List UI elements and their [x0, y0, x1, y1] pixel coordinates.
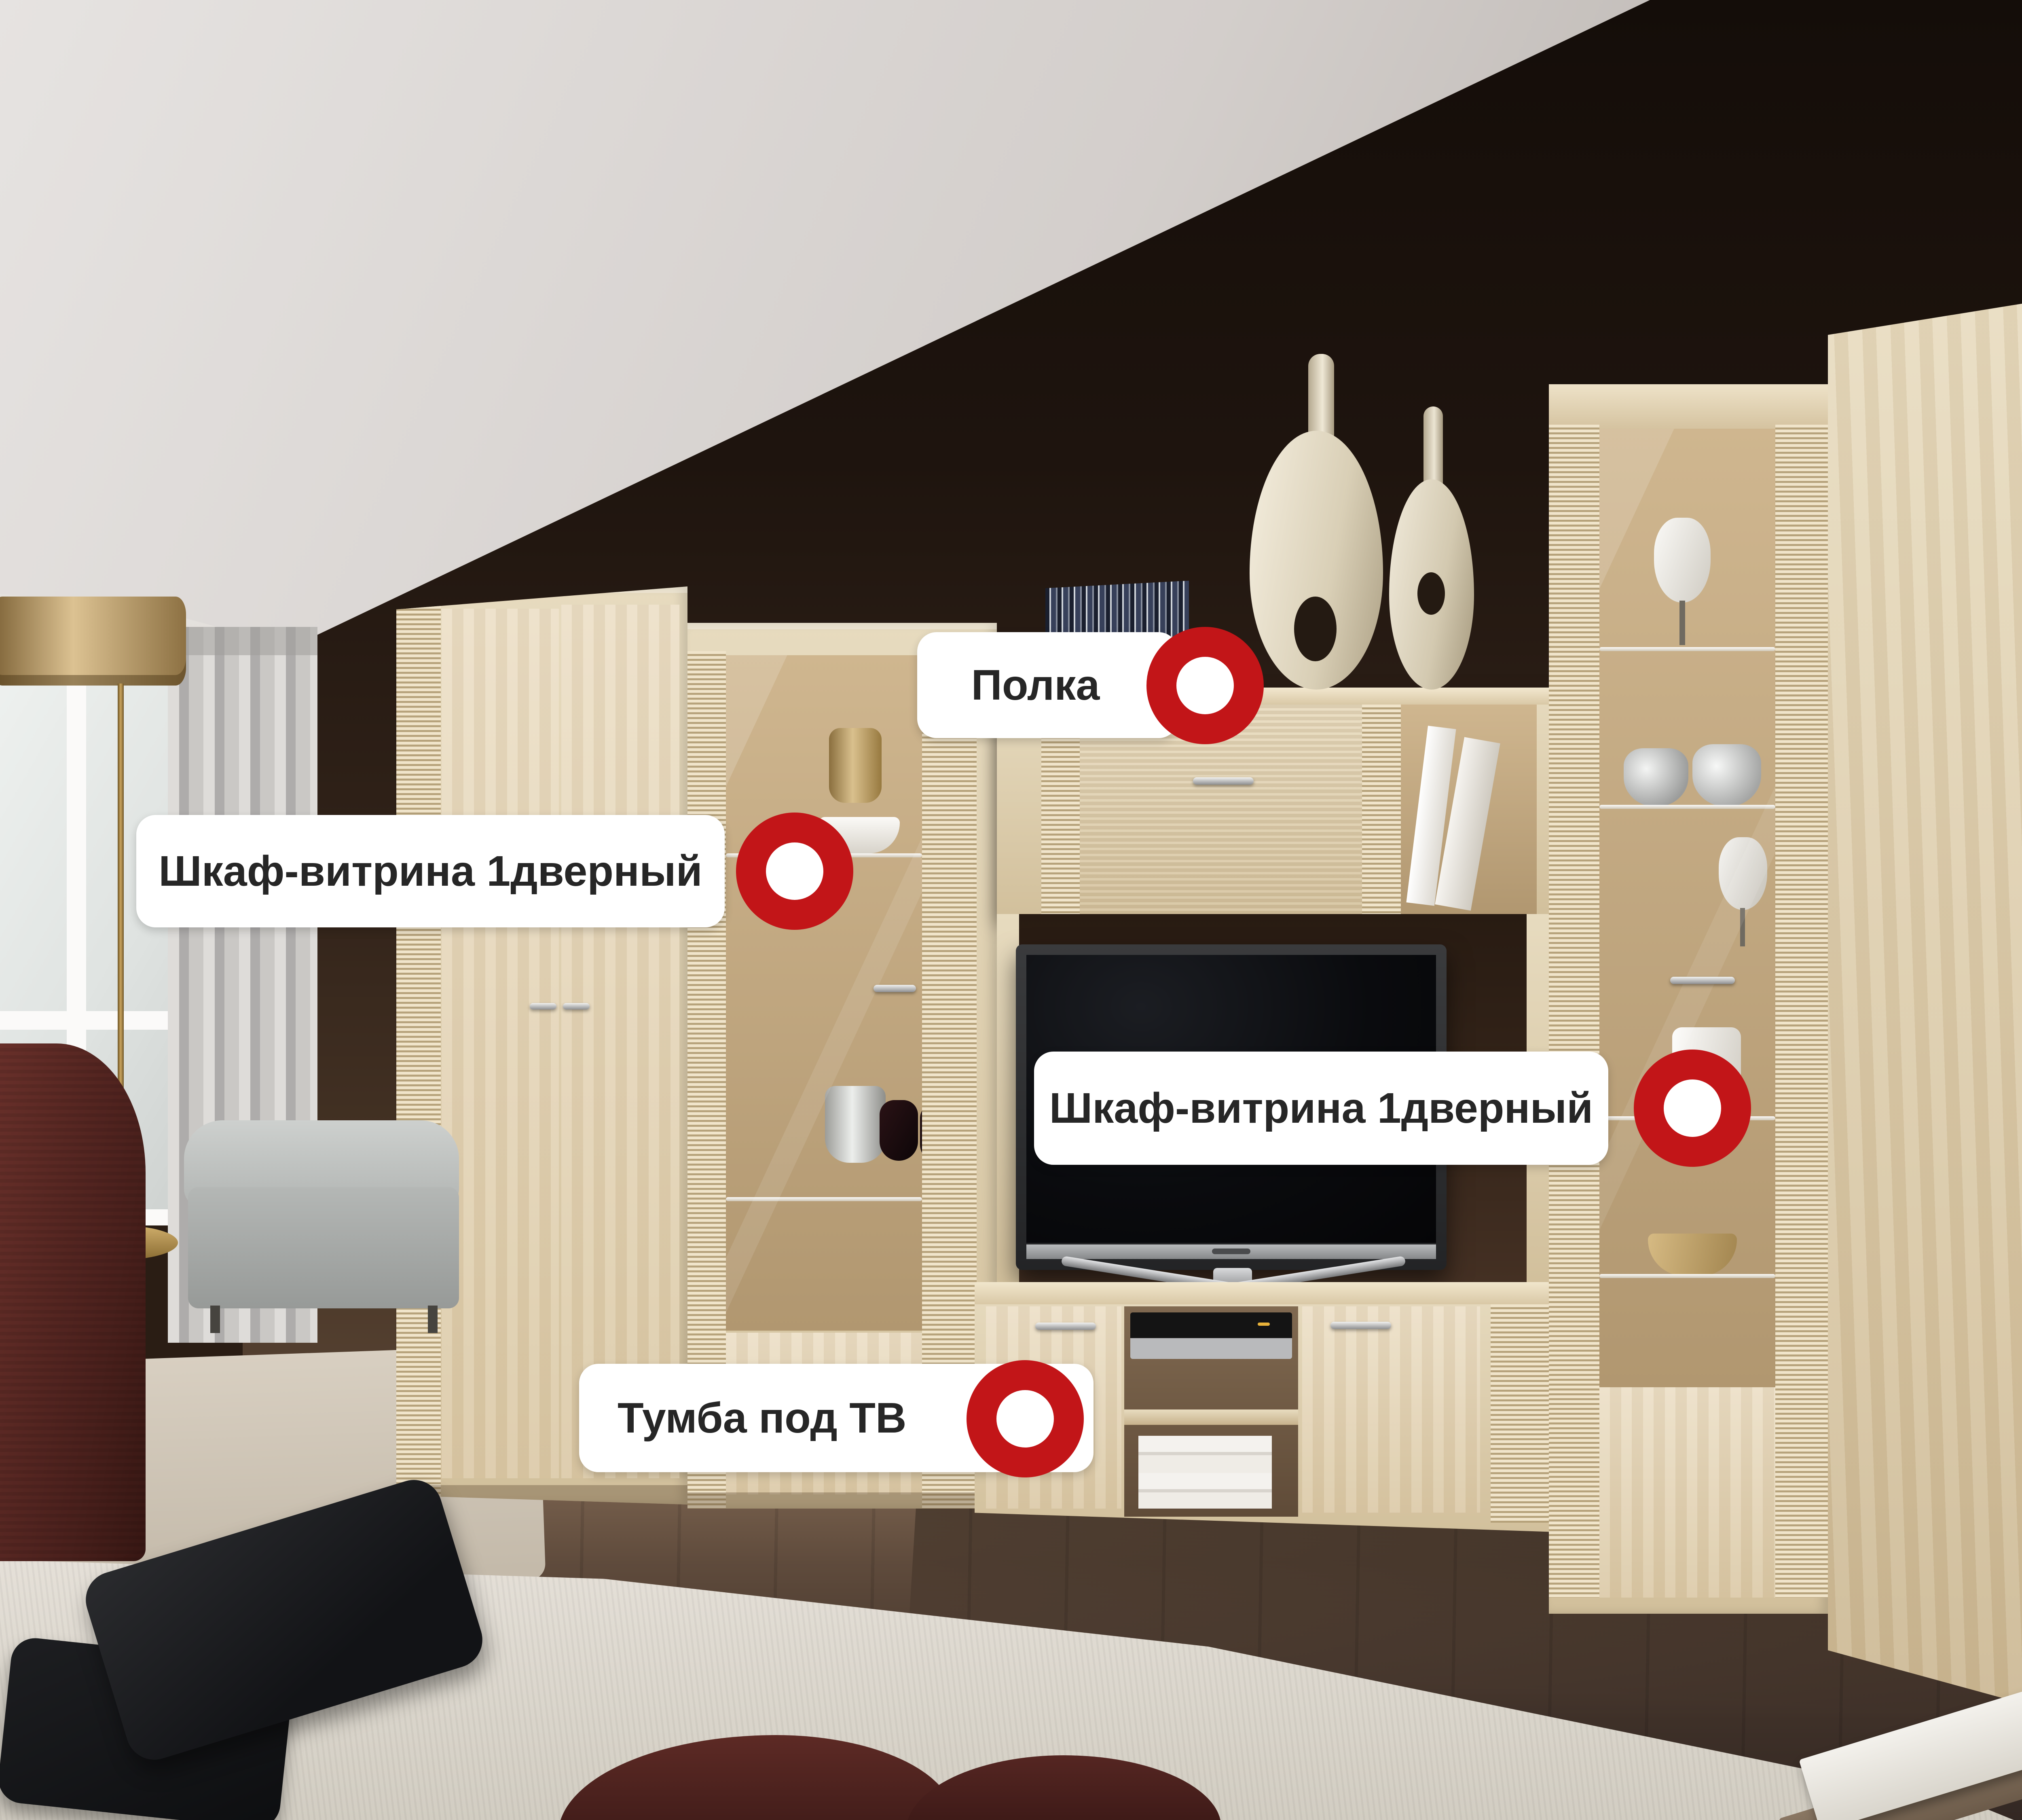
- tumba-middle-cubby: [1124, 1306, 1298, 1517]
- glass-sheen: [1599, 429, 1775, 1387]
- vitrine-left-handle: [874, 985, 916, 992]
- vitrine-right-texture-strip-a: [1549, 425, 1599, 1598]
- hotspot-ring-tv-stand[interactable]: [967, 1360, 1084, 1477]
- tumba-handle-left: [1035, 1323, 1096, 1330]
- tumba-texture-strip: [1491, 1304, 1549, 1523]
- hotspot-ring-vitrine-right[interactable]: [1634, 1050, 1751, 1167]
- tumba-handle-right: [1330, 1322, 1391, 1329]
- vase-small-hole: [1417, 572, 1445, 615]
- vase-large: [1250, 354, 1383, 690]
- hotspot-ring-vitrine-left[interactable]: [736, 813, 853, 930]
- bridge-handle: [1193, 777, 1254, 785]
- av-receiver: [1130, 1312, 1292, 1359]
- annotated-furniture-photo: Полка Шкаф-витрина 1дверный Шкаф-витрина…: [0, 0, 2022, 1820]
- vitrine-right-glass-interior: [1599, 429, 1775, 1387]
- glass-sheen: [726, 655, 922, 1331]
- vitrine-right-top: [1549, 384, 1828, 429]
- vitrine-right-lower-door: [1599, 1387, 1775, 1598]
- floor-lamp-shade: [0, 597, 186, 686]
- wardrobe-left-door-1: [442, 609, 559, 1478]
- wardrobe-left-handle-2: [563, 1003, 590, 1009]
- hotspot-label-text: Полка: [971, 661, 1100, 710]
- sofa-leg-2: [428, 1306, 438, 1333]
- tumba-shelf-board: [1124, 1409, 1298, 1425]
- hotspot-ring-shelf[interactable]: [1146, 627, 1264, 744]
- vitrine-right-texture-strip-b: [1775, 425, 1828, 1598]
- vase-small: [1389, 406, 1474, 690]
- wardrobe-left-handle-1: [530, 1003, 556, 1009]
- vase-large-hole: [1294, 597, 1337, 661]
- sofa-leg-1: [210, 1306, 220, 1333]
- books-stack: [1138, 1436, 1272, 1509]
- tv-logo: [1212, 1249, 1250, 1254]
- hotspot-label-vitrine-right[interactable]: Шкаф-витрина 1дверный: [1034, 1052, 1608, 1165]
- vitrine-left-glass-interior: [726, 655, 922, 1331]
- wardrobe-right: [1828, 259, 2022, 1780]
- tumba-drawer-right: [1302, 1306, 1480, 1513]
- hotspot-label-shelf[interactable]: Полка: [917, 632, 1178, 738]
- window-mullion-h: [0, 1011, 170, 1030]
- sofa-base: [188, 1187, 459, 1308]
- tumba-top: [975, 1282, 1581, 1304]
- hotspot-label-vitrine-left[interactable]: Шкаф-витрина 1дверный: [136, 815, 725, 927]
- hotspot-label-text: Тумба под ТВ: [618, 1394, 907, 1443]
- wardrobe-left-texture-strip: [396, 586, 441, 1505]
- vitrine-left-plinth: [687, 1492, 997, 1509]
- wardrobe-left-door-2: [561, 605, 679, 1478]
- bridge-open-cubby: [1401, 705, 1537, 914]
- vitrine-right-handle: [1670, 977, 1735, 984]
- armchair-burgundy: [0, 1043, 146, 1561]
- vitrine-right: [1549, 384, 1828, 1614]
- hotspot-label-text: Шкаф-витрина 1дверный: [1049, 1084, 1593, 1133]
- hotspot-label-text: Шкаф-витрина 1дверный: [159, 847, 702, 896]
- bridge-texture-divider-b: [1362, 705, 1401, 914]
- receiver-led: [1258, 1323, 1270, 1326]
